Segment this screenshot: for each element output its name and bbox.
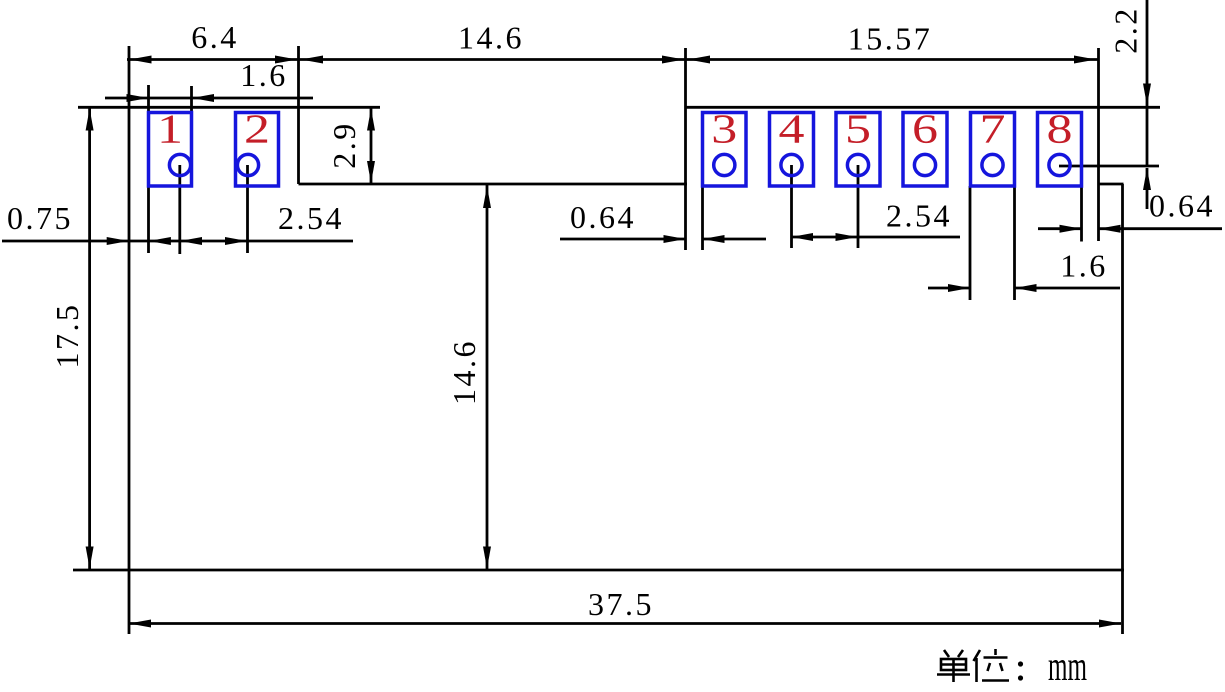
svg-text:4: 4 <box>779 106 805 152</box>
svg-text:1.6: 1.6 <box>1060 248 1108 284</box>
svg-text:2.54: 2.54 <box>886 198 952 234</box>
svg-text:2.9: 2.9 <box>326 121 362 169</box>
svg-text:2: 2 <box>244 106 270 152</box>
svg-text:2.54: 2.54 <box>278 200 344 236</box>
svg-text:mm: mm <box>1048 644 1087 690</box>
svg-text:5: 5 <box>845 106 871 152</box>
svg-text:37.5: 37.5 <box>588 586 654 622</box>
svg-text:0.75: 0.75 <box>7 200 73 236</box>
svg-text:1.6: 1.6 <box>240 57 288 93</box>
svg-text:14.6: 14.6 <box>458 20 524 56</box>
svg-text:6.4: 6.4 <box>191 19 239 55</box>
svg-text:3: 3 <box>711 106 737 152</box>
svg-text:8: 8 <box>1047 106 1073 152</box>
svg-text:17.5: 17.5 <box>49 303 85 369</box>
svg-text:2.2: 2.2 <box>1108 6 1144 54</box>
svg-text:1: 1 <box>157 106 183 152</box>
svg-text:0.64: 0.64 <box>1149 188 1215 224</box>
svg-text:6: 6 <box>912 106 938 152</box>
svg-text:0.64: 0.64 <box>570 199 636 235</box>
svg-text:7: 7 <box>980 106 1006 152</box>
svg-text:14.6: 14.6 <box>446 339 482 405</box>
svg-text:15.57: 15.57 <box>848 21 933 57</box>
